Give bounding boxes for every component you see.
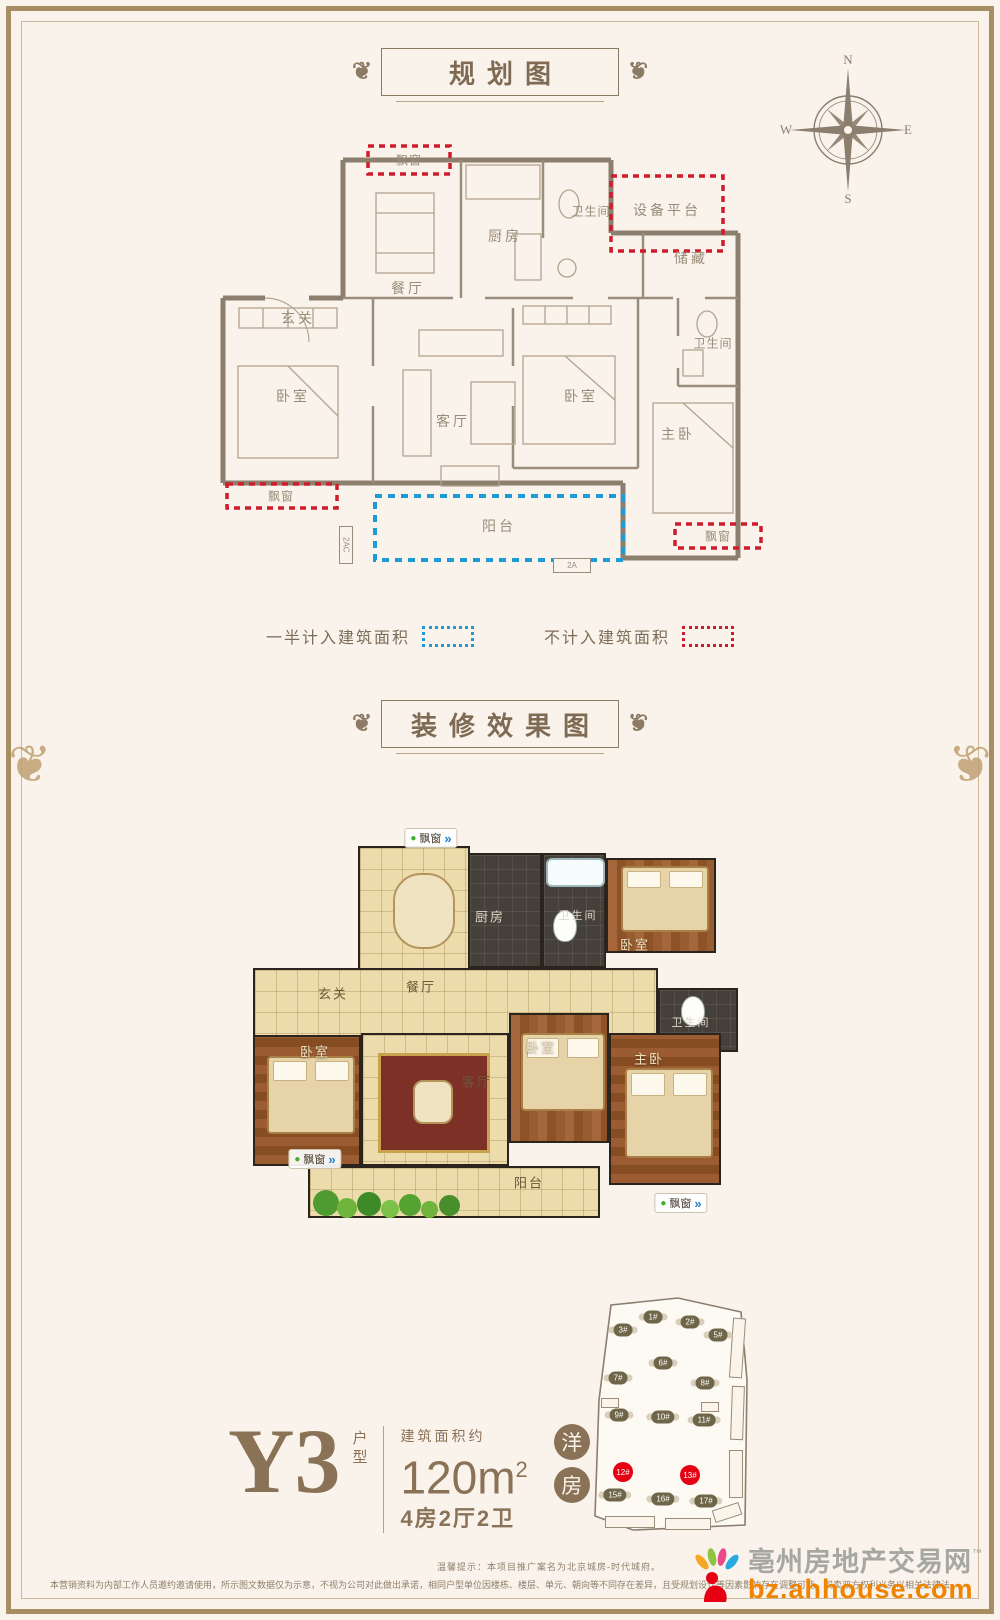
compass-rose: N S W E <box>778 50 914 206</box>
watermark-text: 亳州房地产交易网™ bz.ahhouse.com <box>748 1549 982 1603</box>
plant <box>357 1192 381 1216</box>
bay-window-label: 飘窗 <box>669 1195 691 1211</box>
bay-window-badge-left: ● 飘窗 » <box>288 1149 341 1169</box>
room-label-bathroom: 卫生间 <box>571 203 610 220</box>
site-building-shape <box>605 1516 655 1528</box>
bay-window-badge-top: ● 飘窗 » <box>404 828 457 848</box>
site-building-8: 8# <box>696 1377 715 1390</box>
room-label-bay-window-bl: 飘窗 <box>268 488 294 505</box>
flourish-icon: ❦ <box>628 57 648 86</box>
site-building-7: 7# <box>609 1372 628 1385</box>
render-label-dining: 餐厅 <box>406 977 436 996</box>
unit-area-block: 建筑面积约 120m2 4房2厅2卫 <box>383 1426 527 1533</box>
site-building-15: 15# <box>603 1489 626 1502</box>
compass-icon: N S W E <box>778 50 914 206</box>
legend-excluded-area: 不计入建筑面积 <box>544 624 734 648</box>
room-label-bay-window: 飘窗 <box>396 152 422 169</box>
site-building-12-highlight: 12# <box>613 1462 633 1482</box>
watermark-site-name: 亳州房地产交易网 <box>748 1547 972 1577</box>
double-arrow-icon: » <box>694 1196 701 1211</box>
site-building-shape <box>729 1450 743 1498</box>
plant <box>313 1190 339 1216</box>
plant <box>421 1201 438 1218</box>
badge-fang: 房 <box>554 1467 590 1503</box>
site-building-1: 1# <box>644 1311 663 1324</box>
room-label-equipment: 设备平台 <box>633 200 701 220</box>
flourish-ornament-left: ❦ <box>8 735 52 795</box>
footer-notice: 温馨提示：本项目推广案名为北京城房-时代城府。 <box>437 1560 661 1573</box>
legend-half-area: 一半计入建筑面积 <box>266 624 474 648</box>
flyer-page: ❦ 规划图 ❦ <box>0 0 1000 1620</box>
legend-excluded-label: 不计入建筑面积 <box>544 624 670 648</box>
site-plan: 1# 2# 3# 5# 6# 7# 8# 9# 10# 11# 12# 13# … <box>573 1260 763 1542</box>
render-label-bedroom-mid: 卧室 <box>526 1037 556 1056</box>
render-label-foyer: 玄关 <box>318 984 348 1003</box>
leaf-icon: ● <box>660 1198 666 1209</box>
flourish-icon: ❦ <box>628 709 648 738</box>
site-building-17: 17# <box>694 1495 717 1508</box>
site-building-shape <box>701 1402 719 1412</box>
double-arrow-icon: » <box>328 1152 335 1167</box>
double-arrow-icon: » <box>444 831 451 846</box>
room-label-bay-window-br: 飘窗 <box>705 528 731 545</box>
site-building-13-highlight: 13# <box>680 1465 700 1485</box>
ac-unit-label: 2AC <box>339 526 353 564</box>
render-title-banner: ❦ 装修效果图 ❦ <box>381 700 619 748</box>
bed <box>621 866 709 932</box>
site-building-shape <box>601 1398 619 1408</box>
legend-half-label: 一半计入建筑面积 <box>266 624 410 648</box>
watermark-site-url: bz.ahhouse.com <box>748 1576 982 1603</box>
site-building-9: 9# <box>610 1409 629 1422</box>
red-dotted-swatch <box>682 626 734 647</box>
render-label-bedroom-tr: 卧室 <box>620 935 650 954</box>
render-label-master: 主卧 <box>634 1049 664 1068</box>
blue-dotted-swatch <box>422 626 474 647</box>
plant <box>439 1195 460 1216</box>
site-building-10: 10# <box>651 1411 674 1424</box>
bed <box>267 1056 355 1134</box>
compass-south-label: S <box>844 191 851 206</box>
plant <box>337 1198 357 1218</box>
plan-title: 规划图 <box>437 54 563 91</box>
flourish-icon: ❦ <box>352 709 372 738</box>
site-building-11: 11# <box>693 1414 716 1427</box>
watermark-logo-icon <box>688 1548 744 1604</box>
room-label-bathroom-right: 卫生间 <box>693 335 732 352</box>
dining-table <box>393 873 455 949</box>
plan-title-banner: ❦ 规划图 ❦ <box>381 48 619 96</box>
area-value: 120m2 <box>400 1446 527 1501</box>
render-label-kitchen: 厨房 <box>475 907 505 926</box>
room-label-living: 客厅 <box>436 411 470 431</box>
room-label-foyer: 玄关 <box>281 308 315 328</box>
badge-yang: 洋 <box>554 1424 590 1460</box>
rooms-spec: 4房2厅2卫 <box>400 1501 527 1533</box>
area-superscript: 2 <box>516 1457 528 1482</box>
flourish-icon: ❦ <box>352 57 372 86</box>
plant <box>381 1200 399 1218</box>
render-label-bath-top: 卫生间 <box>559 907 598 923</box>
flourish-ornament-right: ❦ <box>948 735 992 795</box>
room-label-storage: 储藏 <box>674 248 708 268</box>
plant <box>399 1194 421 1216</box>
bay-window-badge-right: ● 飘窗 » <box>654 1193 707 1213</box>
site-building-3: 3# <box>614 1324 633 1337</box>
ac-unit-label: 2A <box>553 558 591 573</box>
site-building-shape <box>665 1518 711 1530</box>
decorated-floor-plan: 玄关 餐厅 厨房 卫生间 卧室 卫生间 卧室 客厅 卧室 主卧 阳台 ● 飘窗 … <box>253 818 775 1220</box>
render-title: 装修效果图 <box>399 706 601 743</box>
compass-north-label: N <box>843 52 853 67</box>
unit-info: Y3 户型 建筑面积约 120m2 4房2厅2卫 洋 房 <box>228 1422 590 1533</box>
area-number: 120m <box>400 1451 515 1503</box>
room-label-bedroom-left: 卧室 <box>276 386 310 406</box>
site-building-6: 6# <box>654 1357 673 1370</box>
render-label-living: 客厅 <box>462 1072 492 1091</box>
bed <box>625 1068 713 1158</box>
room-label-dining: 餐厅 <box>391 278 425 298</box>
render-label-balcony: 阳台 <box>514 1173 544 1192</box>
planning-floor-plan: 飘窗 厨房 卫生间 设备平台 储藏 餐厅 玄关 卧室 客厅 卧室 卫生间 主卧 … <box>213 138 765 590</box>
render-label-bedroom-left: 卧室 <box>300 1042 330 1061</box>
bathtub <box>546 858 605 887</box>
bay-window-label: 飘窗 <box>303 1151 325 1167</box>
coffee-table <box>413 1080 453 1124</box>
area-label: 建筑面积约 <box>400 1426 527 1446</box>
compass-east-label: E <box>904 122 912 137</box>
area-legend: 一半计入建筑面积 不计入建筑面积 <box>0 624 1000 648</box>
leaf-icon: ● <box>294 1154 300 1165</box>
room-label-master: 主卧 <box>661 424 695 444</box>
site-building-shape <box>730 1386 745 1440</box>
unit-badges: 洋 房 <box>554 1424 590 1503</box>
compass-west-label: W <box>780 122 793 137</box>
bay-window-label: 飘窗 <box>419 830 441 846</box>
site-building-5: 5# <box>709 1329 728 1342</box>
site-building-2: 2# <box>681 1316 700 1329</box>
render-label-bath-right: 卫生间 <box>672 1014 711 1030</box>
trademark-symbol: ™ <box>972 1548 982 1559</box>
room-label-kitchen: 厨房 <box>488 226 522 246</box>
unit-code: Y3 <box>228 1422 340 1500</box>
room-label-balcony: 阳台 <box>482 516 516 536</box>
unit-type-label: 户型 <box>348 1430 369 1468</box>
room-label-bedroom-right: 卧室 <box>564 386 598 406</box>
site-watermark: 亳州房地产交易网™ bz.ahhouse.com <box>688 1548 982 1604</box>
site-building-16: 16# <box>651 1493 674 1506</box>
leaf-icon: ● <box>410 833 416 844</box>
